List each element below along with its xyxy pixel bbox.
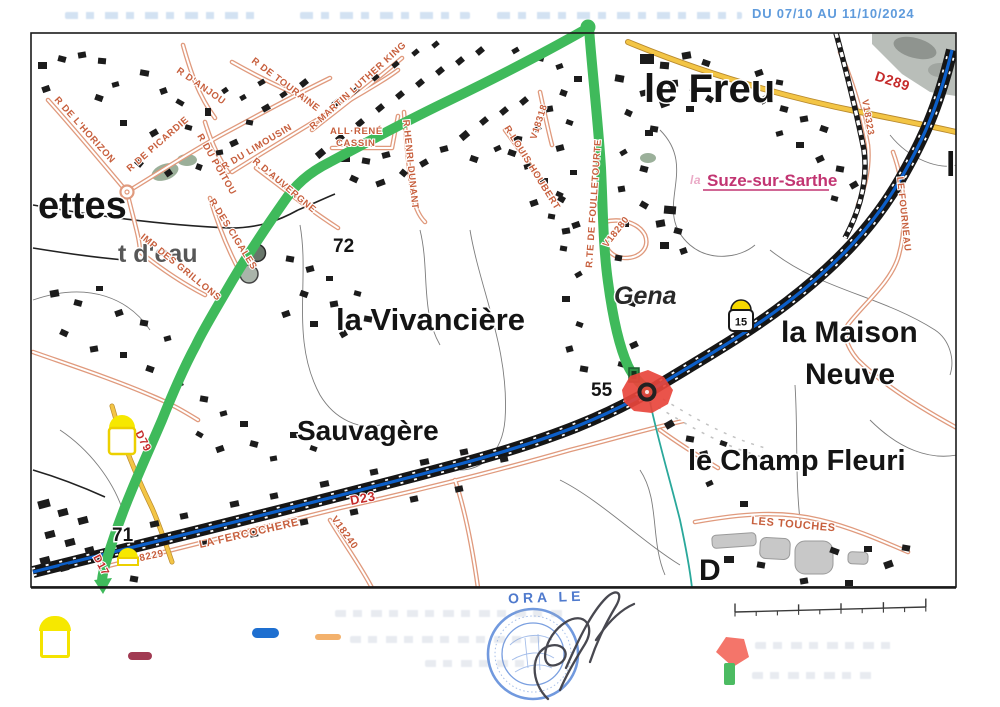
building (493, 145, 501, 152)
building (479, 116, 489, 126)
building (59, 329, 69, 338)
building (419, 158, 429, 167)
building (349, 508, 358, 516)
building (299, 290, 309, 298)
legend-maroon-swatch (128, 652, 152, 660)
map-label-0: ettes (38, 185, 127, 227)
building (221, 87, 229, 95)
building (362, 157, 371, 164)
map-label-6: 55 (591, 380, 613, 401)
building (57, 508, 68, 517)
building (98, 58, 106, 65)
building (205, 108, 211, 116)
building (219, 410, 227, 417)
building (431, 40, 440, 48)
building (565, 119, 573, 126)
building (249, 440, 258, 448)
building (140, 69, 150, 76)
building (77, 516, 88, 525)
building (120, 352, 127, 358)
building (459, 130, 470, 141)
building (270, 455, 278, 461)
building (159, 87, 168, 95)
building (200, 395, 209, 402)
building (664, 419, 675, 430)
legend-illegible-text (350, 636, 540, 643)
building (469, 155, 479, 163)
map-label-11: 71 (112, 525, 134, 546)
building (41, 85, 51, 93)
building (800, 577, 809, 584)
map-label-14: R DE L'HORIZON (52, 95, 117, 166)
legend-orange-swatch (315, 634, 341, 640)
map-label-4: la Vivancière (336, 302, 525, 337)
map-label-3: 72 (333, 236, 354, 257)
building (519, 96, 529, 106)
building (305, 265, 314, 273)
legend-illegible-text (425, 660, 535, 667)
legend-pk-marker-icon (38, 616, 72, 658)
building (419, 458, 429, 466)
building (411, 48, 420, 56)
map-label-13: D (699, 554, 721, 587)
building (326, 276, 333, 281)
building (574, 271, 583, 279)
map-label-5: Gena (614, 282, 677, 310)
building (640, 54, 654, 64)
building (883, 560, 894, 570)
building (562, 296, 570, 302)
building (299, 78, 309, 88)
building (163, 335, 171, 342)
building (369, 468, 378, 476)
building (618, 185, 626, 192)
map-label-36: LES TOUCHES (751, 515, 836, 534)
building (96, 286, 103, 291)
building (94, 94, 104, 102)
building (815, 155, 825, 164)
building (624, 109, 633, 117)
building (560, 245, 568, 251)
building (686, 435, 695, 442)
building (845, 580, 853, 586)
building (38, 62, 47, 69)
building (619, 149, 628, 157)
building (499, 106, 509, 116)
contour-lines (33, 130, 957, 575)
building (315, 148, 326, 159)
building (114, 309, 124, 317)
map-label-42: la (690, 173, 701, 187)
building (215, 445, 225, 453)
svg-text:15: 15 (735, 317, 747, 329)
building (575, 321, 583, 328)
building (381, 151, 390, 159)
building (705, 480, 713, 487)
map-label-21: ALL·RENÉ (330, 126, 383, 137)
building (673, 227, 682, 235)
building (57, 55, 66, 63)
building (629, 341, 639, 350)
building (562, 227, 571, 234)
building (375, 179, 386, 188)
building (864, 546, 872, 552)
building (511, 47, 520, 55)
building (655, 219, 665, 227)
building (796, 142, 804, 148)
building (570, 170, 577, 175)
building (229, 139, 239, 148)
building (819, 125, 829, 133)
building (111, 81, 119, 88)
legend-deviation-swatch (724, 663, 735, 685)
building (664, 205, 677, 214)
building (849, 180, 859, 189)
legend-illegible-text (335, 610, 565, 617)
scanned-deviation-map-page: { "header": { "date_text": "DU 07/10 AU … (0, 0, 1000, 707)
building (439, 145, 448, 153)
building (548, 213, 556, 219)
scale-bar (735, 599, 926, 617)
building (559, 89, 568, 97)
building (415, 78, 425, 88)
building (555, 144, 564, 152)
building (90, 345, 99, 352)
map-label-22: CASSIN (336, 138, 376, 149)
map-label-10: Sauvagère (297, 415, 439, 446)
stream (650, 402, 692, 588)
building (269, 492, 278, 500)
building (73, 299, 82, 307)
building (353, 290, 361, 297)
building (195, 163, 203, 171)
building (615, 254, 623, 261)
building (409, 495, 418, 503)
building (455, 56, 465, 66)
railway (836, 33, 865, 238)
legend-blue-swatch (252, 628, 279, 638)
building (44, 530, 55, 539)
map-label-7: la Maison (781, 316, 918, 349)
building (639, 165, 648, 173)
building (830, 195, 838, 202)
building (800, 115, 809, 122)
building (565, 345, 573, 353)
building (740, 501, 748, 507)
building (145, 365, 155, 373)
building (375, 103, 385, 113)
legend-closure-swatch (716, 637, 749, 667)
building (681, 51, 691, 59)
building (140, 319, 149, 326)
pk-marker-15: 15 (729, 300, 753, 331)
building (779, 105, 788, 113)
building (309, 445, 317, 452)
building (701, 59, 711, 67)
map-label-32: LE FOURNEAU (894, 176, 913, 252)
stamp-text: ORA LE (508, 588, 585, 607)
building (660, 242, 669, 249)
building (395, 90, 405, 100)
building (120, 120, 127, 126)
building (775, 130, 783, 137)
map-label-20: R MARTIN LUTHER KING (308, 40, 409, 132)
building (175, 98, 184, 106)
map-label-23: R HENRI DUNANT (400, 119, 420, 210)
map-label-41: Suze-sur-Sarthe (707, 171, 837, 190)
building (459, 448, 468, 456)
building (286, 255, 295, 262)
building (229, 500, 239, 508)
building (49, 289, 59, 297)
map-label-12: le (946, 146, 974, 184)
building (78, 51, 87, 58)
building (310, 321, 318, 327)
building (529, 199, 539, 207)
building (319, 480, 329, 488)
building (179, 512, 188, 520)
building (130, 575, 139, 582)
map-label-15: R DE PICARDIE (125, 114, 191, 174)
building (639, 200, 649, 209)
signature (535, 592, 634, 699)
building (37, 499, 51, 510)
building (349, 175, 359, 184)
building (571, 221, 581, 229)
pk-marker-1 (109, 415, 135, 454)
building (475, 46, 485, 56)
building (240, 421, 248, 427)
building (281, 310, 291, 318)
building (679, 247, 688, 255)
legend-illegible-text (755, 642, 895, 649)
building (614, 74, 624, 82)
building (64, 538, 75, 547)
map-label-2: le Freu (644, 67, 775, 111)
building (435, 66, 445, 76)
legend-illegible-text (752, 672, 872, 679)
building (757, 561, 766, 568)
gray-buildings (712, 532, 869, 574)
map-label-9: le Champ Fleuri (688, 445, 906, 477)
building (776, 79, 784, 85)
map-labels-layer: ettest d'eaule Freu72la VivancièreGena55… (38, 40, 974, 587)
map-label-8: Neuve (805, 358, 895, 391)
building (724, 556, 734, 563)
map: ettest d'eaule Freu72la VivancièreGena55… (0, 0, 1000, 707)
building (580, 365, 589, 372)
building (555, 63, 563, 70)
building (574, 76, 582, 82)
building (239, 94, 247, 101)
building (195, 431, 204, 439)
